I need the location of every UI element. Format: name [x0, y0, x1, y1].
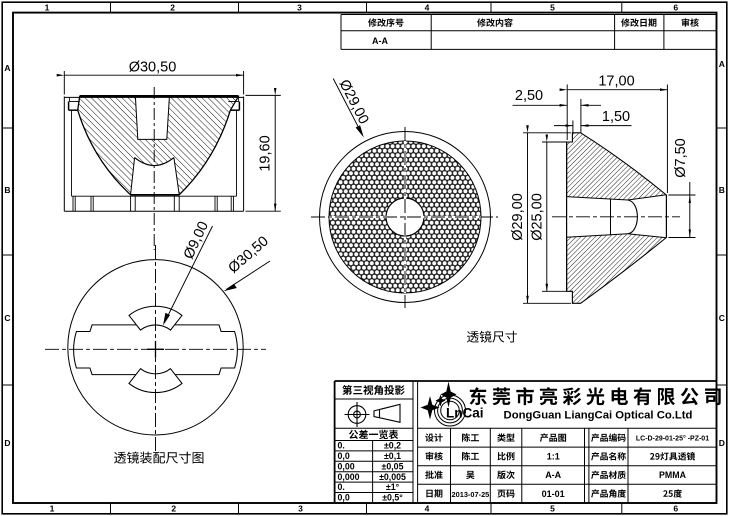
svg-text:C: C: [719, 313, 725, 323]
svg-text:DongGuan LiangCai Optical Co.L: DongGuan LiangCai Optical Co.Ltd: [504, 410, 693, 422]
svg-text:0,0: 0,0: [338, 451, 350, 461]
svg-text:6: 6: [673, 3, 678, 13]
svg-text:±0,05: ±0,05: [382, 461, 404, 471]
svg-text:3: 3: [297, 3, 302, 13]
svg-text:±0,2: ±0,2: [384, 441, 401, 451]
svg-text:1:1: 1:1: [547, 452, 560, 462]
svg-text:5: 5: [550, 504, 555, 514]
svg-text:±0,1: ±0,1: [384, 451, 401, 461]
svg-text:17,00: 17,00: [598, 74, 634, 90]
svg-text:LnCai: LnCai: [446, 406, 484, 421]
svg-text:4: 4: [425, 504, 430, 514]
svg-text:01-01: 01-01: [542, 489, 565, 499]
svg-text:LC-D-29-01-25° -PZ-01: LC-D-29-01-25° -PZ-01: [636, 435, 709, 443]
svg-text:Ø30,50: Ø30,50: [129, 60, 177, 76]
svg-text:D: D: [4, 438, 10, 448]
svg-text:19,60: 19,60: [257, 135, 273, 171]
svg-text:2013-07-25: 2013-07-25: [451, 490, 489, 499]
svg-text:PMMA: PMMA: [659, 470, 687, 480]
svg-text:1: 1: [45, 3, 50, 13]
svg-text:C: C: [4, 313, 10, 323]
svg-text:±0,005: ±0,005: [379, 472, 406, 482]
svg-text:0.: 0.: [338, 482, 345, 492]
svg-text:Ø25,00: Ø25,00: [530, 193, 546, 241]
svg-text:2: 2: [171, 504, 176, 514]
svg-text:A: A: [719, 59, 725, 69]
svg-text:1: 1: [50, 504, 55, 514]
svg-text:A: A: [4, 63, 10, 73]
svg-text:3: 3: [298, 504, 303, 514]
svg-text:0,00: 0,00: [338, 461, 355, 471]
svg-text:0,000: 0,000: [338, 472, 360, 482]
svg-text:2: 2: [170, 3, 175, 13]
svg-text:0.: 0.: [338, 441, 345, 451]
svg-text:A-A: A-A: [545, 470, 561, 480]
svg-text:0,0: 0,0: [338, 493, 350, 503]
svg-text:Ø7,50: Ø7,50: [673, 138, 689, 178]
svg-text:2,50: 2,50: [515, 88, 543, 104]
svg-text:±1°: ±1°: [386, 482, 400, 492]
svg-text:B: B: [719, 185, 725, 195]
svg-text:1,50: 1,50: [602, 109, 630, 125]
svg-text:4: 4: [425, 3, 430, 13]
svg-text:Ø29,00: Ø29,00: [510, 193, 526, 241]
svg-text:±0,5°: ±0,5°: [382, 493, 403, 503]
svg-text:D: D: [719, 438, 725, 448]
svg-text:6: 6: [673, 504, 678, 514]
svg-text:B: B: [4, 185, 10, 195]
svg-text:5: 5: [550, 3, 555, 13]
svg-text:A-A: A-A: [372, 36, 388, 46]
